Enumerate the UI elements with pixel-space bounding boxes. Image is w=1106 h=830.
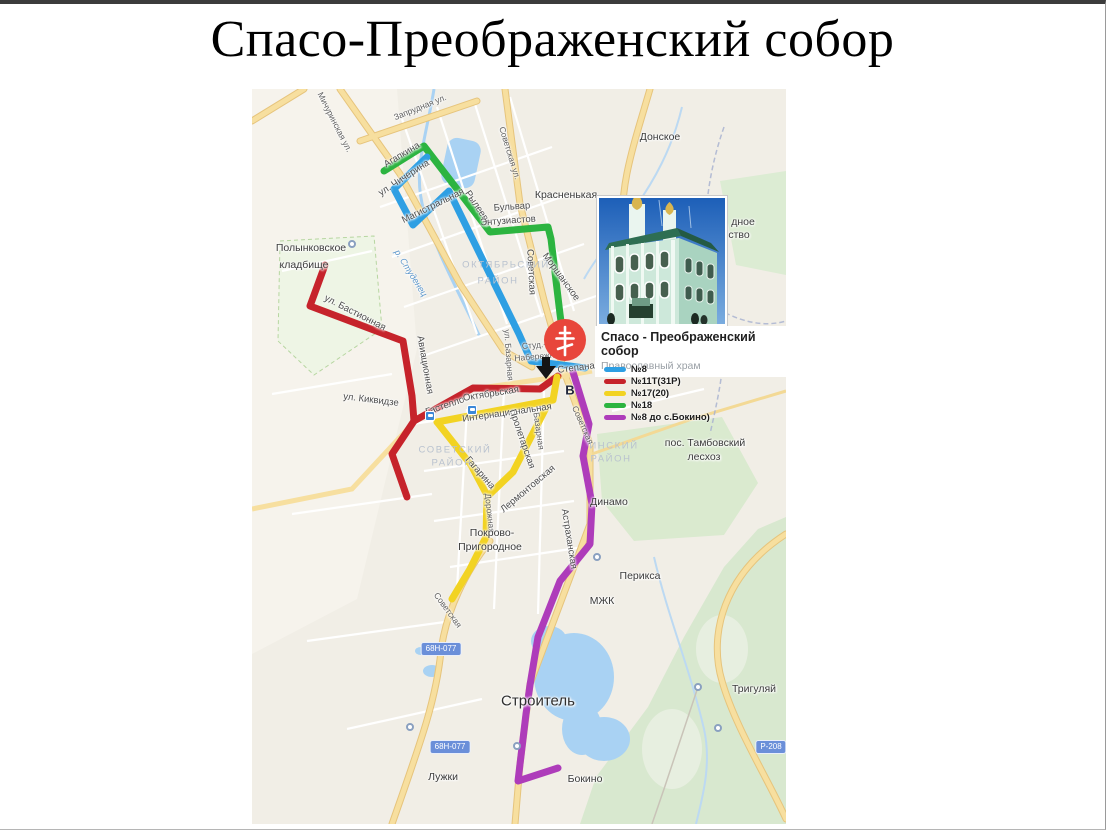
- page-title: Спасо-Преображенский собор: [0, 10, 1105, 69]
- location-arrow-icon: [536, 357, 556, 379]
- cathedral-marker-icon: [544, 319, 586, 361]
- legend-color-chip: [604, 379, 626, 384]
- legend-label: №8 до с.Бокино): [631, 412, 710, 423]
- cathedral-photo: [597, 196, 727, 326]
- legend-color-chip: [604, 403, 626, 408]
- route-legend: №8№11Т(31Р)№17(20)№18№8 до с.Бокино): [604, 363, 710, 423]
- legend-label: №11Т(31Р): [631, 376, 681, 387]
- legend-item: №8 до с.Бокино): [604, 411, 710, 423]
- slide: Спасо-Преображенский собор: [0, 0, 1106, 830]
- cathedral-photo-image: [599, 198, 725, 324]
- info-card-title: Спасо - Преображенский собор: [601, 330, 786, 358]
- legend-item: №8: [604, 363, 710, 375]
- legend-item: №11Т(31Р): [604, 375, 710, 387]
- legend-color-chip: [604, 367, 626, 372]
- route-endpoint-letter: В: [565, 383, 574, 398]
- legend-label: №18: [631, 400, 652, 411]
- legend-item: №17(20): [604, 387, 710, 399]
- legend-color-chip: [604, 391, 626, 396]
- city-map: Мичуринская ул.Запрудная ул.Агапкинаул. …: [252, 89, 786, 824]
- legend-label: №8: [631, 364, 647, 375]
- legend-label: №17(20): [631, 388, 669, 399]
- legend-item: №18: [604, 399, 710, 411]
- legend-color-chip: [604, 415, 626, 420]
